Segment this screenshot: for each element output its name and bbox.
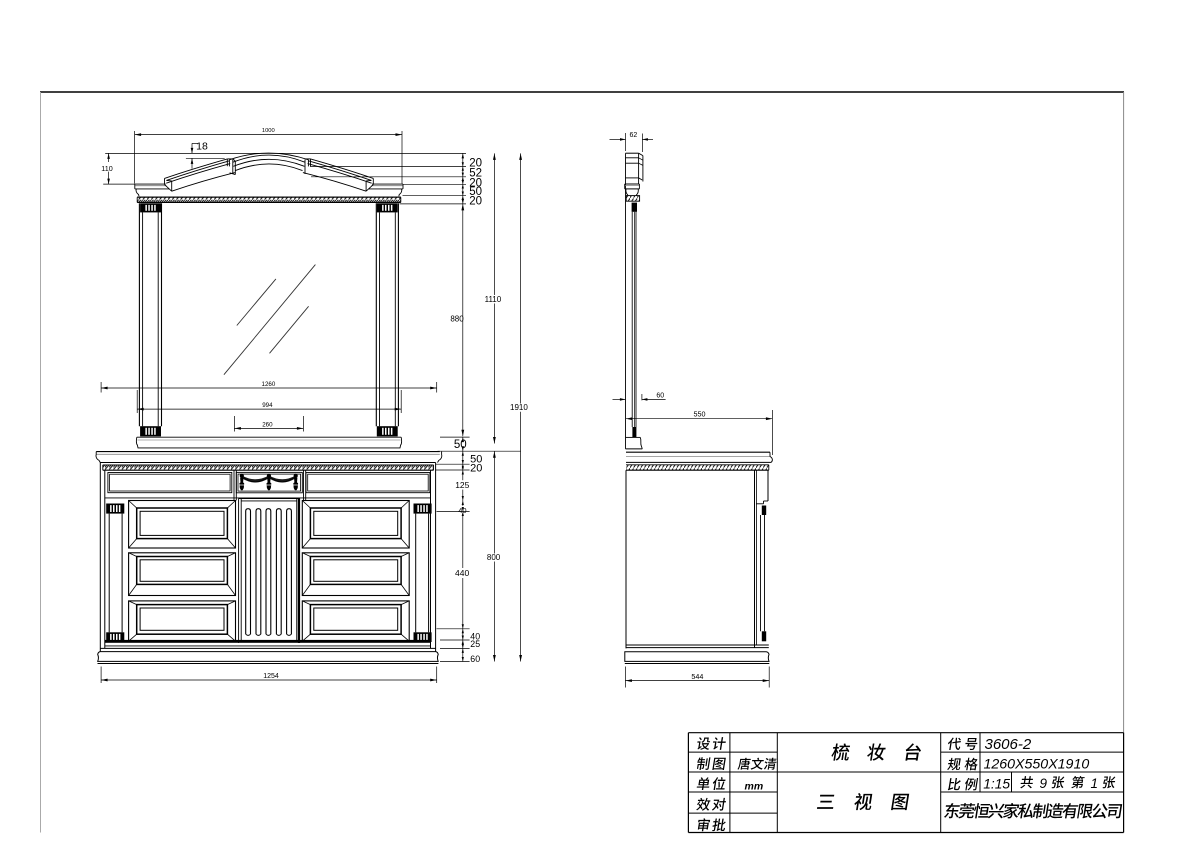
svg-text:1260X550X1910: 1260X550X1910	[984, 757, 1090, 773]
svg-text:60: 60	[656, 393, 664, 400]
svg-text:62: 62	[630, 132, 638, 139]
svg-text:125: 125	[455, 480, 469, 490]
svg-text:1000: 1000	[262, 128, 275, 134]
svg-text:994: 994	[262, 402, 273, 409]
svg-text:25: 25	[470, 639, 480, 649]
svg-text:550: 550	[694, 409, 706, 418]
svg-text:260: 260	[262, 421, 273, 428]
svg-text:544: 544	[691, 672, 703, 681]
svg-text:50: 50	[454, 439, 467, 451]
svg-text:20: 20	[470, 463, 482, 475]
svg-text:3606-2: 3606-2	[985, 736, 1032, 753]
svg-text:9: 9	[1040, 776, 1048, 791]
svg-text:60: 60	[470, 654, 480, 664]
svg-text:110: 110	[101, 164, 112, 173]
svg-text:20: 20	[469, 196, 482, 208]
svg-text:800: 800	[487, 553, 501, 562]
svg-text:440: 440	[455, 568, 469, 578]
svg-text:1254: 1254	[263, 673, 279, 680]
svg-text:1260: 1260	[262, 381, 276, 388]
svg-text:mm: mm	[745, 781, 764, 793]
svg-text:1: 1	[1091, 776, 1099, 791]
svg-text:1910: 1910	[510, 403, 528, 412]
svg-text:18: 18	[196, 141, 208, 153]
svg-text:1:15: 1:15	[983, 777, 1010, 792]
svg-text:40: 40	[458, 506, 466, 515]
svg-text:1110: 1110	[485, 295, 502, 304]
svg-text:880: 880	[450, 315, 464, 324]
